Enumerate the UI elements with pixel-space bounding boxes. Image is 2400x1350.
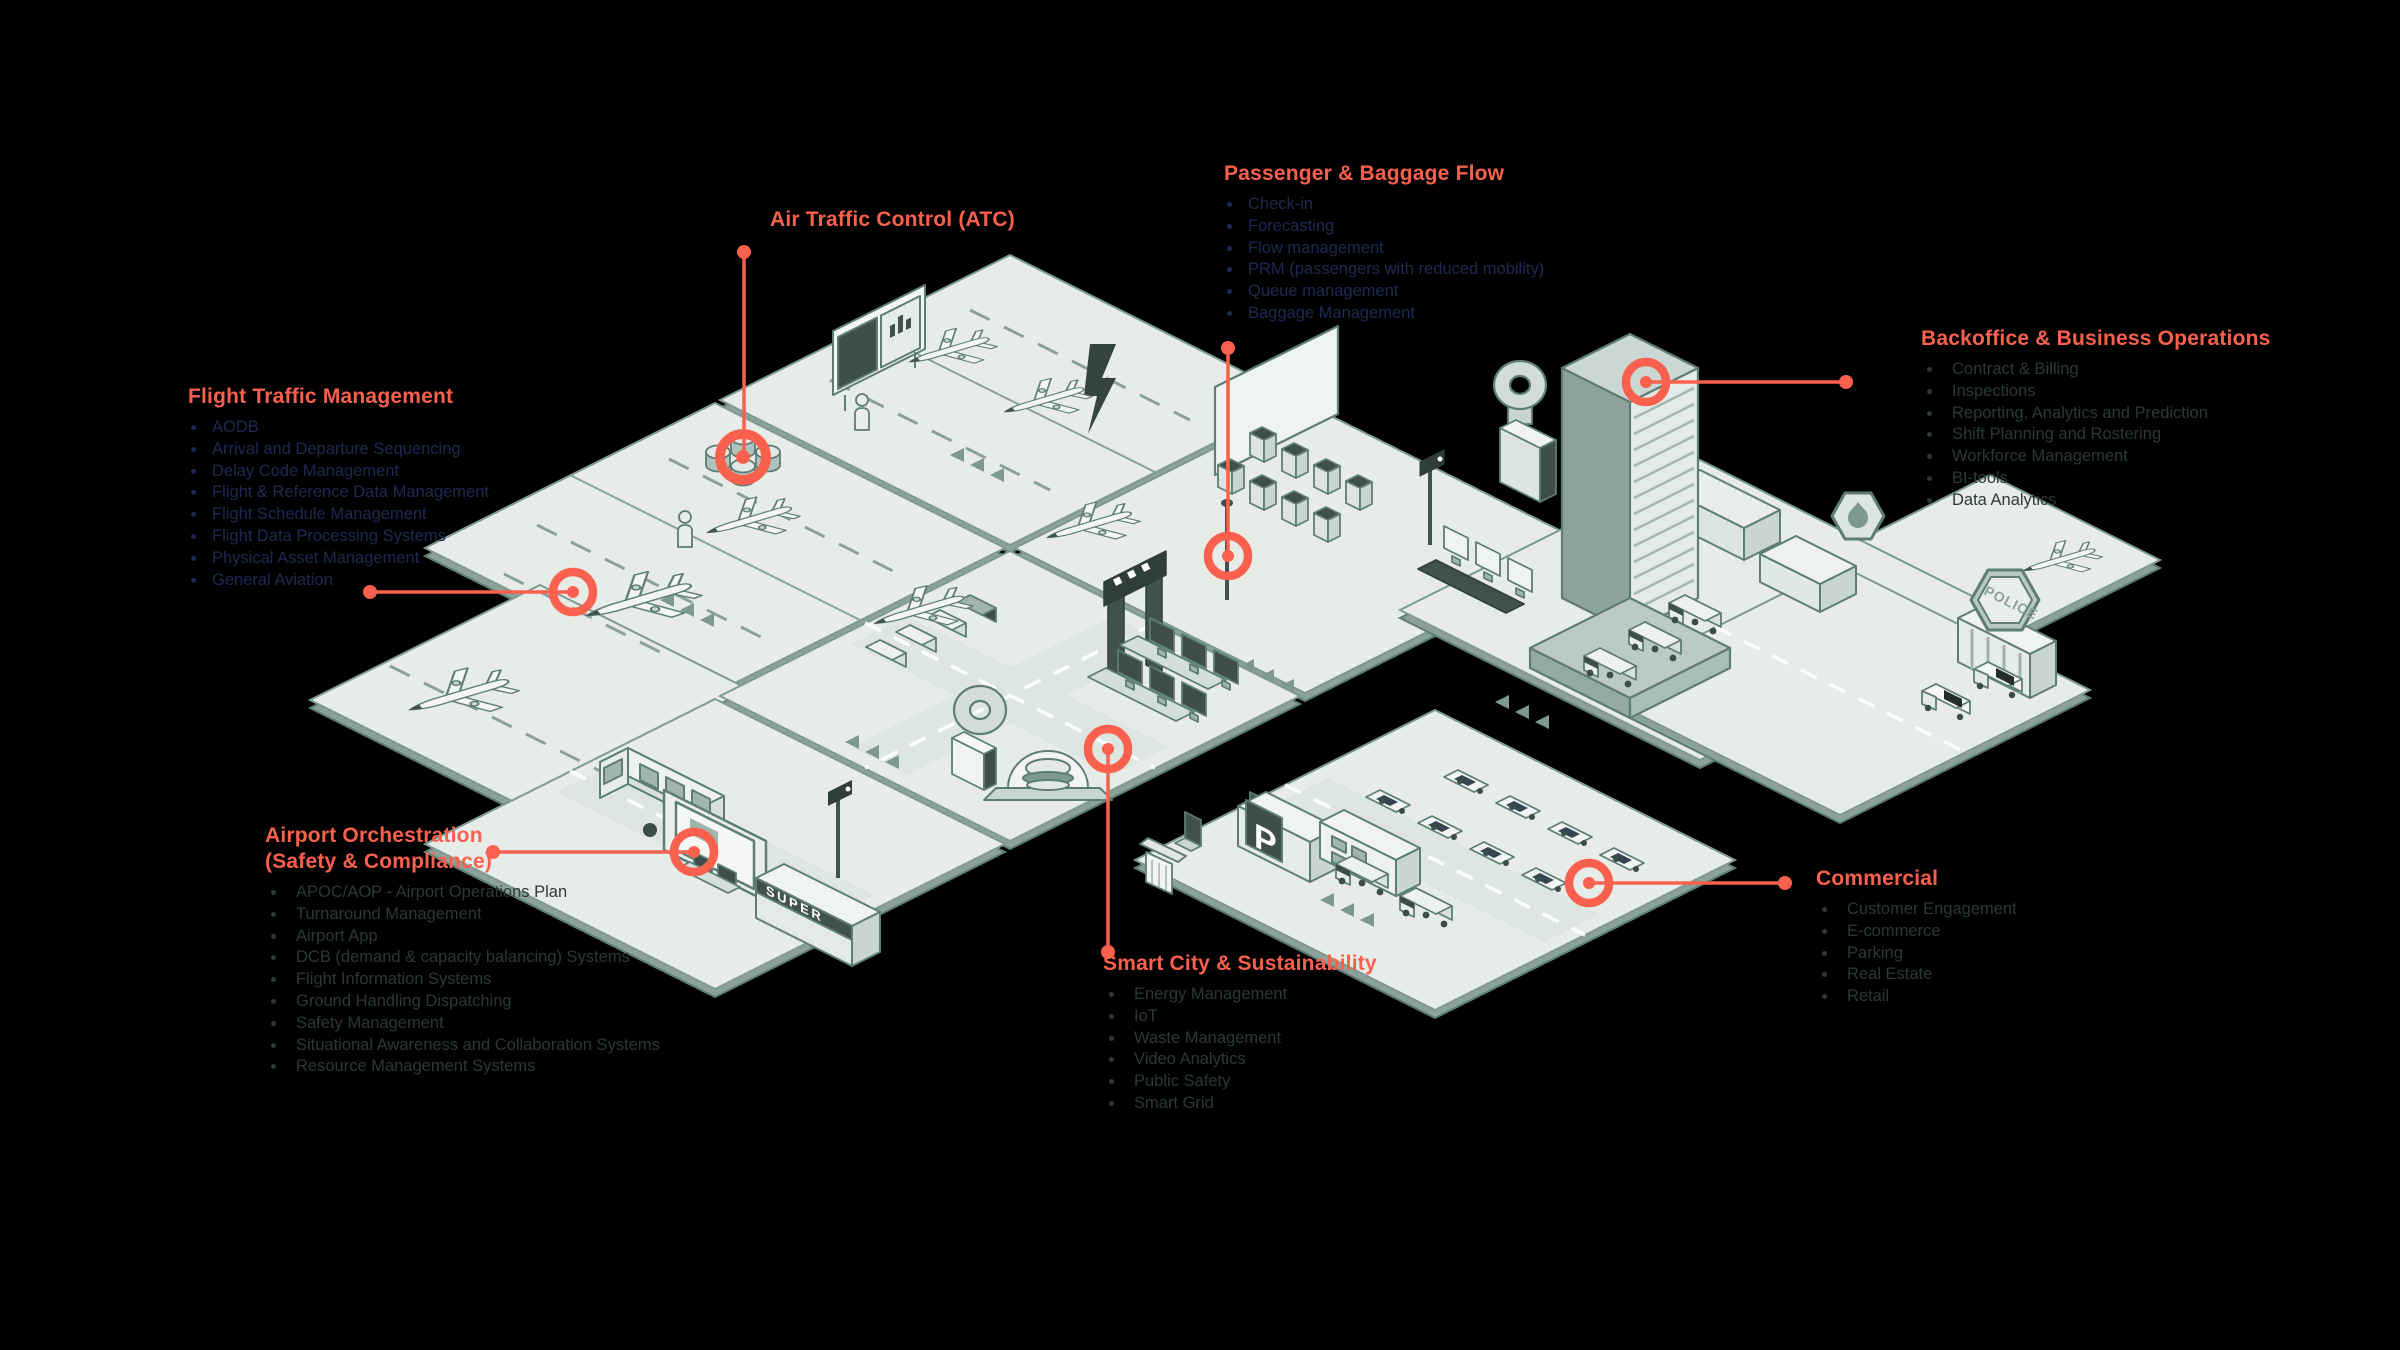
callout-item: Situational Awareness and Collaboration … [265, 1035, 660, 1057]
callout-title: Airport Orchestration (Safety & Complian… [265, 823, 660, 875]
callout-title: Backoffice & Business Operations [1921, 326, 2271, 352]
callout-dot-passenger [1221, 341, 1235, 355]
callout-title: Commercial [1816, 866, 2017, 892]
callout-list: AODBArrival and Departure SequencingDela… [188, 417, 489, 591]
callout-item: Video Analytics [1103, 1049, 1377, 1071]
callout-list: Customer EngagementE-commerceParkingReal… [1816, 899, 2017, 1008]
callout-item: Check-in [1224, 194, 1544, 216]
callout-airport-orchestration: Airport Orchestration (Safety & Complian… [265, 823, 660, 1078]
callout-title: Flight Traffic Management [188, 384, 489, 410]
callout-item: Real Estate [1816, 964, 2017, 986]
callout-item: Flight Data Processing Systems [188, 526, 489, 548]
callout-item: Ground Handling Dispatching [265, 991, 660, 1013]
callout-item: Flight Schedule Management [188, 504, 489, 526]
callout-commercial: Commercial Customer EngagementE-commerce… [1816, 866, 2017, 1008]
callout-item: Smart Grid [1103, 1093, 1377, 1115]
callout-item: Parking [1816, 943, 2017, 965]
person-figure [678, 511, 692, 547]
torus-sculpture [1494, 361, 1546, 424]
callout-list: Energy ManagementIoTWaste ManagementVide… [1103, 984, 1377, 1115]
callout-item: BI-tools [1921, 468, 2271, 490]
airport-infographic: POLICE [0, 0, 2400, 1350]
callout-dot-commercial [1778, 876, 1792, 890]
callout-item: DCB (demand & capacity balancing) System… [265, 947, 660, 969]
callout-item: Flow management [1224, 238, 1544, 260]
callout-item: PRM (passengers with reduced mobility) [1224, 259, 1544, 281]
callout-dot-backoffice [1839, 375, 1853, 389]
callout-item: Delay Code Management [188, 461, 489, 483]
callout-title: Smart City & Sustainability [1103, 951, 1377, 977]
vending-kiosk [1500, 420, 1556, 502]
callout-title: Air Traffic Control (ATC) [770, 207, 1015, 233]
callout-item: Shift Planning and Rostering [1921, 424, 2271, 446]
callout-air-traffic-control: Air Traffic Control (ATC) [770, 207, 1015, 240]
callout-backoffice-business-operations: Backoffice & Business Operations Contrac… [1921, 326, 2271, 512]
callout-item: APOC/AOP - Airport Operations Plan [265, 882, 660, 904]
callout-item: Energy Management [1103, 984, 1377, 1006]
callout-item: Arrival and Departure Sequencing [188, 439, 489, 461]
callout-item: IoT [1103, 1006, 1377, 1028]
callout-item: Reporting, Analytics and Prediction [1921, 403, 2271, 425]
callout-item: Retail [1816, 986, 2017, 1008]
callout-item: Resource Management Systems [265, 1056, 660, 1078]
callout-item: Customer Engagement [1816, 899, 2017, 921]
callout-item: Forecasting [1224, 216, 1544, 238]
callout-list: Check-inForecastingFlow managementPRM (p… [1224, 194, 1544, 325]
callout-item: General Aviation [188, 570, 489, 592]
callout-item: AODB [188, 417, 489, 439]
callout-item: Flight Information Systems [265, 969, 660, 991]
callout-item: Airport App [265, 926, 660, 948]
callout-item: Waste Management [1103, 1028, 1377, 1050]
callout-smart-city-sustainability: Smart City & Sustainability Energy Manag… [1103, 951, 1377, 1115]
callout-item: Workforce Management [1921, 446, 2271, 468]
callout-item: Turnaround Management [265, 904, 660, 926]
callout-item: Contract & Billing [1921, 359, 2271, 381]
callout-item: Physical Asset Management [188, 548, 489, 570]
callout-item: E-commerce [1816, 921, 2017, 943]
callout-item: Public Safety [1103, 1071, 1377, 1093]
callout-title: Passenger & Baggage Flow [1224, 161, 1544, 187]
callout-item: Flight & Reference Data Management [188, 482, 489, 504]
callout-item: Data Analytics [1921, 490, 2271, 512]
callout-list: APOC/AOP - Airport Operations PlanTurnar… [265, 882, 660, 1078]
callout-item: Queue management [1224, 281, 1544, 303]
airport-illustration: POLICE [0, 0, 2400, 1350]
person-figure [855, 394, 869, 430]
callout-item: Inspections [1921, 381, 2271, 403]
callout-passenger-baggage-flow: Passenger & Baggage Flow Check-inForecas… [1224, 161, 1544, 325]
callout-item: Baggage Management [1224, 303, 1544, 325]
callout-flight-traffic-management: Flight Traffic Management AODBArrival an… [188, 384, 489, 591]
callout-item: Safety Management [265, 1013, 660, 1035]
callout-dot-atc [737, 245, 751, 259]
chair [1175, 812, 1201, 851]
callout-list: Contract & BillingInspectionsReporting, … [1921, 359, 2271, 512]
